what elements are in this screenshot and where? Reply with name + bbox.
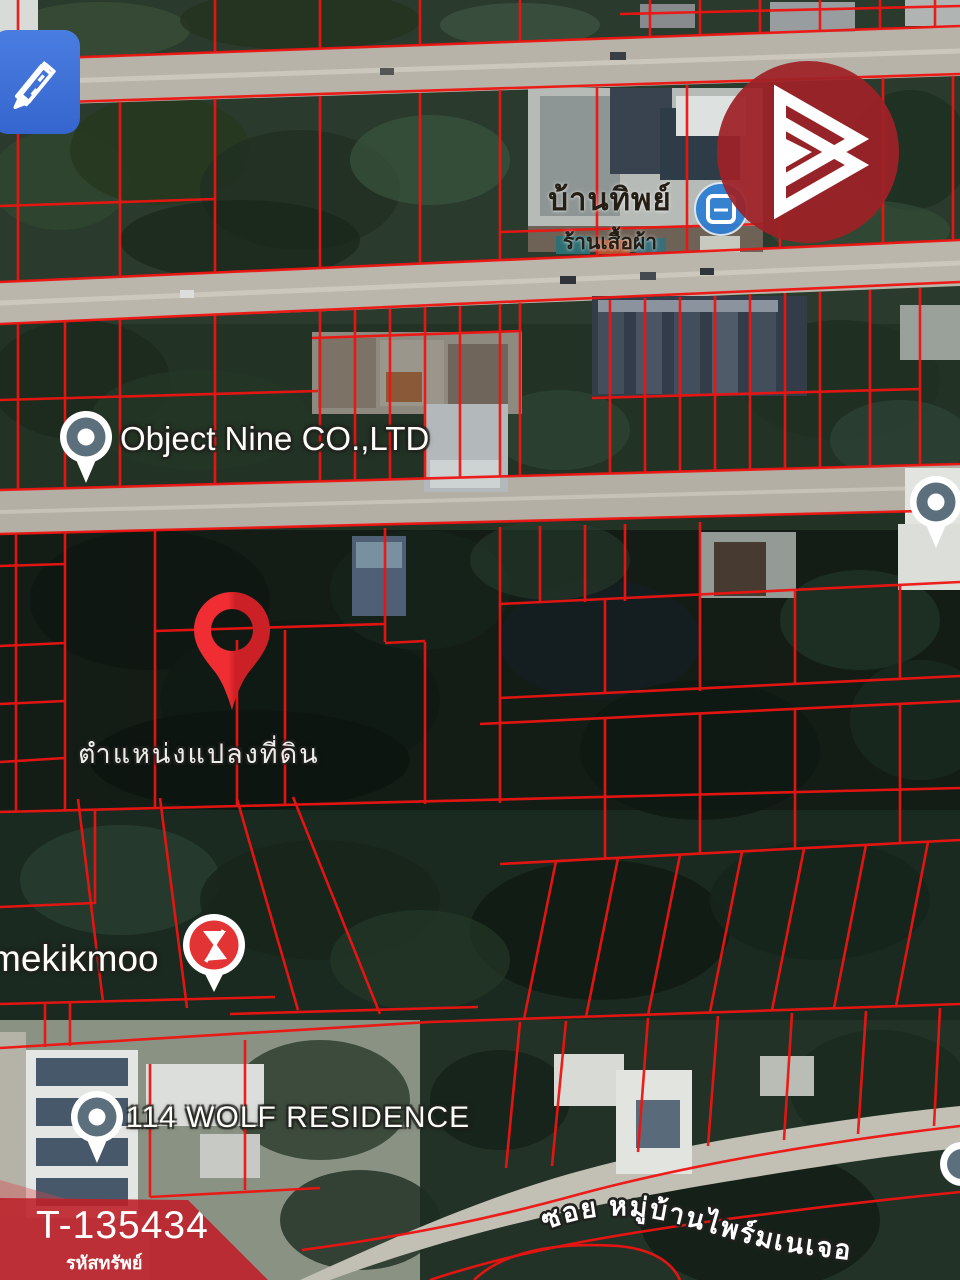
satellite-map-canvas[interactable]: ซอย หมู่บ้านไพร์มเนเจอ บ้านทิพย์ ร้านเสื… [0, 0, 960, 1280]
brand-logo [717, 61, 899, 243]
pencil-ruler-icon [3, 45, 69, 120]
property-code-caption: รหัสทรัพย์ [66, 1248, 268, 1277]
edit-tools-button[interactable] [0, 30, 80, 134]
